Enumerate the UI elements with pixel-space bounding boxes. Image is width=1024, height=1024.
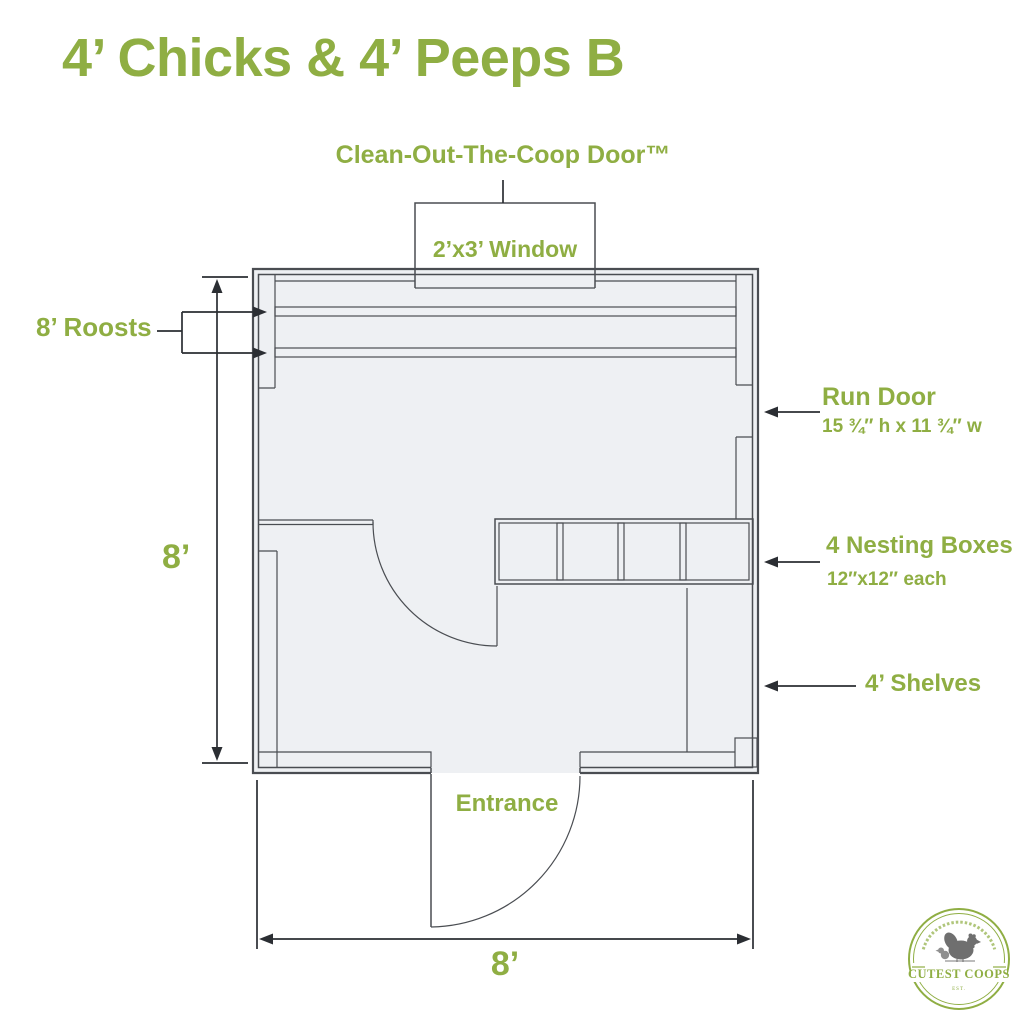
- window-label: 2’x3’ Window: [415, 237, 595, 261]
- logo-name-text: CUTEST COOPS: [908, 967, 1010, 981]
- nesting-boxes-arrow: [764, 557, 820, 568]
- arrow-down-icon: [212, 747, 223, 761]
- arrow-left-icon: [764, 407, 778, 418]
- run-door-size-label: 15 ¾″ h x 11 ¾″ w: [822, 417, 982, 437]
- roosts-label: 8’ Roosts: [36, 314, 152, 341]
- shelves-label: 4’ Shelves: [865, 671, 981, 696]
- arrow-left-icon: [764, 557, 778, 568]
- coop-floor: [253, 269, 758, 773]
- cutest-coops-logo: CUTEST COOPS EST.: [905, 905, 1013, 1013]
- coop-floor-plan-page: 4’ Chicks & 4’ Peeps B: [0, 0, 1024, 1024]
- run-door-label: Run Door: [822, 384, 936, 410]
- arrow-left-icon: [259, 934, 273, 945]
- entrance-label: Entrance: [427, 791, 587, 816]
- logo-badge: CUTEST COOPS EST.: [905, 905, 1013, 1013]
- cleanout-door-label: Clean-Out-The-Coop Door™: [253, 142, 753, 168]
- dimension-height: [202, 277, 248, 763]
- height-dimension-label: 8’: [162, 540, 190, 576]
- width-dimension-label: 8’: [255, 947, 755, 983]
- nesting-boxes-size-label: 12″x12″ each: [827, 570, 947, 590]
- nesting-boxes-label: 4 Nesting Boxes: [826, 533, 1013, 558]
- logo-est-text: EST.: [952, 987, 966, 992]
- roosts-leader: [157, 307, 267, 359]
- run-door-arrow: [764, 407, 820, 418]
- shelves-arrow: [764, 681, 856, 692]
- arrow-up-icon: [212, 279, 223, 293]
- arrow-left-icon: [764, 681, 778, 692]
- arrow-right-icon: [737, 934, 751, 945]
